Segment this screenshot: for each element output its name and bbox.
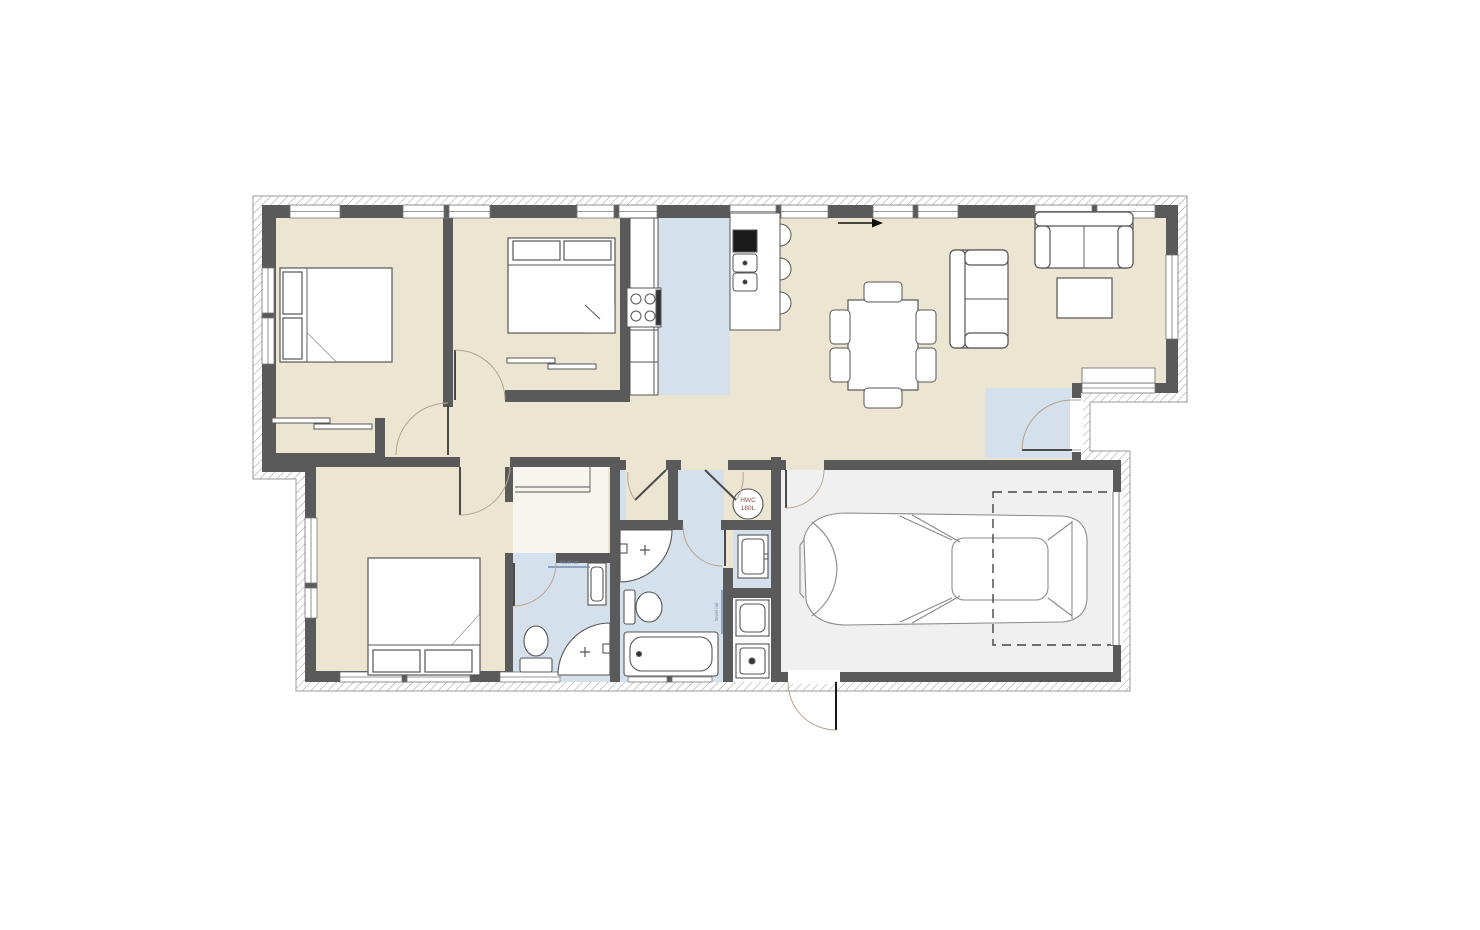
hwc-label-line2: 180L — [741, 505, 756, 512]
floor-entry-tile — [985, 388, 1072, 458]
vanity-icon — [588, 563, 606, 605]
floor-robe — [513, 467, 608, 553]
bed-icon — [368, 558, 480, 675]
garage-door — [1111, 492, 1123, 645]
bed-icon — [280, 268, 392, 362]
bath-icon — [624, 632, 718, 676]
window-top-1 — [290, 205, 340, 218]
sink-icon — [733, 254, 757, 291]
window-top-2 — [403, 205, 490, 218]
sofa-icon-horizontal — [1035, 212, 1133, 268]
window-top-3 — [577, 205, 657, 218]
car-icon — [800, 513, 1087, 625]
stool-icons — [780, 224, 791, 314]
window-top-5 — [873, 205, 958, 218]
dining-table — [848, 300, 918, 390]
laundry-tub-icon — [736, 644, 769, 678]
hwc-label-line1: HWC — [740, 497, 756, 504]
cooktop-icon — [627, 288, 661, 327]
coffee-table — [1057, 278, 1112, 318]
bed-icon — [508, 238, 615, 333]
floor-plan: HWC 180L Towel rail Towel rail — [0, 0, 1480, 930]
window-living-south — [1082, 383, 1155, 393]
hot-water-cylinder: HWC 180L — [733, 489, 763, 519]
sofa-icon-vertical — [950, 250, 1008, 348]
ensuite-towel-rail-label: Towel rail — [560, 560, 579, 565]
toilet-icon — [624, 590, 662, 624]
kitchen-island — [730, 213, 791, 330]
window-seat — [1082, 368, 1155, 383]
window-left-bedroom3 — [305, 518, 317, 618]
sink-drainer — [733, 230, 757, 252]
washing-machine-icon — [736, 600, 769, 636]
vanity-icon — [738, 535, 768, 578]
floor-kitchen-tile — [658, 218, 730, 395]
window-bottom-2 — [500, 672, 560, 682]
bathroom-towel-rail-label: Towel rail — [714, 603, 719, 622]
window-right-living — [1166, 255, 1178, 339]
window-left-bedroom1 — [262, 268, 274, 364]
